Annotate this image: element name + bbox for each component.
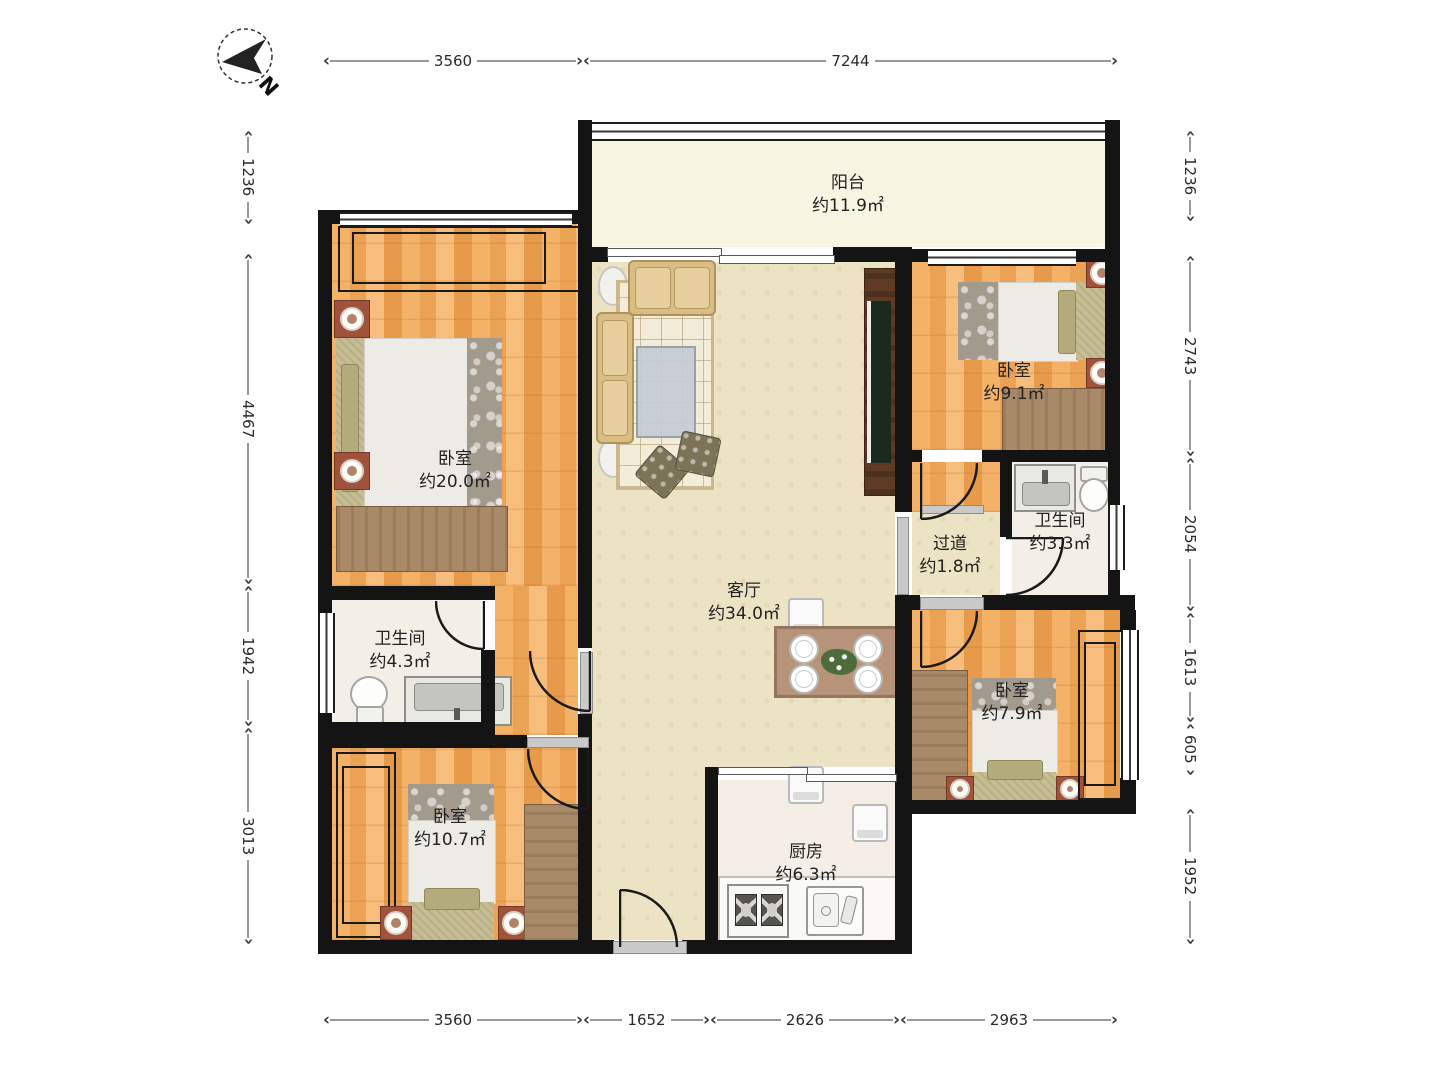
door-threshold — [527, 737, 589, 748]
dim-right-1: 1236 — [1181, 130, 1199, 222]
dining-chair — [852, 804, 888, 842]
window — [1121, 630, 1139, 780]
room-area: 约34.0㎡ — [674, 603, 814, 626]
wall — [907, 800, 1136, 814]
sliding-door — [806, 774, 897, 782]
door — [529, 650, 591, 712]
lamp-icon — [1060, 779, 1080, 799]
wall — [318, 940, 614, 954]
dim-label: 1652 — [622, 1011, 670, 1029]
wall — [1105, 249, 1120, 462]
dim-label: 1236 — [1181, 152, 1199, 200]
sink-vanity — [404, 676, 512, 726]
dim-bottom-3: 2626 — [710, 1011, 900, 1029]
wall — [895, 262, 912, 512]
wardrobe — [338, 226, 580, 292]
room-area: 约9.1㎡ — [944, 383, 1084, 406]
dim-label: 7244 — [826, 52, 874, 70]
double-bed — [958, 282, 1110, 360]
lamp-icon — [340, 459, 364, 483]
room-area: 约20.0㎡ — [385, 471, 525, 494]
wall — [332, 586, 495, 600]
coffee-table — [636, 346, 696, 438]
sink-vanity — [1014, 464, 1076, 512]
dim-top-2: 7244 — [583, 52, 1118, 70]
wall — [1076, 249, 1106, 262]
dim-left-3: 1942 — [239, 585, 257, 727]
dim-label: 2743 — [1181, 332, 1199, 380]
wall — [705, 767, 718, 954]
wall — [982, 595, 1135, 610]
dim-label: 1236 — [239, 153, 257, 201]
room-label-bathroom-left: 卫生间约4.3㎡ — [330, 628, 470, 674]
door — [527, 748, 589, 810]
room-name: 卧室 — [942, 680, 1082, 703]
bed-pillow — [424, 888, 480, 910]
wardrobe — [1078, 630, 1124, 800]
wall — [682, 940, 912, 954]
room-area: 约11.9㎡ — [778, 195, 918, 218]
dim-label: 4467 — [239, 395, 257, 443]
dim-right-6: 1952 — [1181, 808, 1199, 945]
wall — [1120, 778, 1136, 800]
dim-left-4: 3013 — [239, 727, 257, 945]
room-area: 约7.9㎡ — [942, 703, 1082, 726]
room-area: 约6.3㎡ — [736, 864, 876, 887]
dim-label: 2963 — [985, 1011, 1033, 1029]
door — [920, 462, 978, 520]
dining-table — [774, 626, 904, 698]
room-name: 卧室 — [385, 448, 525, 471]
dim-label: 605 — [1181, 730, 1199, 769]
sliding-door — [607, 248, 722, 257]
room-name: 客厅 — [674, 580, 814, 603]
wall — [578, 249, 592, 648]
wall — [895, 595, 920, 610]
dim-label: 2054 — [1181, 510, 1199, 558]
lamp-icon — [502, 911, 526, 935]
nightstand — [380, 906, 412, 940]
dim-label: 1942 — [239, 632, 257, 680]
nightstand — [334, 452, 370, 490]
dim-right-3: 2054 — [1181, 457, 1199, 612]
window — [592, 122, 1105, 141]
dim-bottom-4: 2963 — [900, 1011, 1118, 1029]
lamp-icon — [384, 911, 408, 935]
room-name: 卧室 — [944, 360, 1084, 383]
door — [619, 889, 679, 949]
wall — [578, 120, 592, 249]
dim-label: 3560 — [429, 1011, 477, 1029]
plate-icon — [853, 664, 883, 694]
wall — [318, 210, 332, 954]
stove — [727, 884, 789, 938]
nightstand — [334, 300, 370, 338]
plate-icon — [789, 634, 819, 664]
room-name: 卫生间 — [330, 628, 470, 651]
wall — [592, 247, 608, 262]
room-label-hallway: 过道约1.8㎡ — [880, 533, 1020, 579]
dim-left-1: 1236 — [239, 130, 257, 225]
dim-left-2: 4467 — [239, 253, 257, 585]
room-label-bedroom-bottom-right: 卧室约7.9㎡ — [942, 680, 1082, 726]
room-label-living: 客厅约34.0㎡ — [674, 580, 814, 626]
tv-cabinet — [864, 268, 896, 496]
north-compass-icon: N — [212, 22, 286, 96]
plate-icon — [789, 664, 819, 694]
room-name: 卫生间 — [990, 510, 1130, 533]
dim-bottom-2: 1652 — [583, 1011, 710, 1029]
bed-pillow — [987, 760, 1043, 780]
door — [920, 610, 978, 668]
dim-right-2: 2743 — [1181, 255, 1199, 457]
loveseat-sofa — [628, 260, 716, 316]
window — [928, 249, 1076, 266]
room-area: 约4.3㎡ — [330, 651, 470, 674]
floor-cushion — [674, 430, 721, 477]
plate-icon — [853, 634, 883, 664]
room-area: 约10.7㎡ — [380, 829, 520, 852]
wall — [1108, 462, 1120, 507]
window — [340, 212, 572, 227]
room-name: 厨房 — [736, 841, 876, 864]
wall — [982, 450, 1105, 462]
dim-label: 3013 — [239, 812, 257, 860]
wall — [1120, 610, 1136, 632]
room-area: 约1.8㎡ — [880, 556, 1020, 579]
dim-right-4: 1613 — [1181, 612, 1199, 723]
dim-label: 2626 — [781, 1011, 829, 1029]
dim-right-5: 605 — [1181, 723, 1199, 770]
toilet — [1078, 466, 1106, 508]
room-label-bedroom-top-right: 卧室约9.1㎡ — [944, 360, 1084, 406]
wall — [1108, 568, 1120, 595]
dim-label: 3560 — [429, 52, 477, 70]
room-name: 卧室 — [380, 806, 520, 829]
door-threshold — [920, 597, 984, 610]
room-name: 阳台 — [778, 172, 918, 195]
sofa — [596, 312, 634, 444]
tv-icon — [867, 301, 891, 463]
room-label-bedroom-bottom-left: 卧室约10.7㎡ — [380, 806, 520, 852]
dim-bottom-1: 3560 — [323, 1011, 583, 1029]
wall — [912, 249, 929, 262]
wall — [1105, 120, 1120, 249]
flower-centerpiece-icon — [821, 649, 857, 675]
wall — [318, 722, 495, 735]
dim-label: 1952 — [1181, 852, 1199, 900]
dim-label: 1613 — [1181, 643, 1199, 691]
room-label-kitchen: 厨房约6.3㎡ — [736, 841, 876, 887]
room-name: 过道 — [880, 533, 1020, 556]
sliding-door — [718, 767, 808, 775]
bed-blanket — [958, 282, 998, 360]
wall — [318, 735, 527, 748]
sliding-door — [719, 255, 835, 264]
room-label-bedroom-master: 卧室约20.0㎡ — [385, 448, 525, 494]
lamp-icon — [950, 779, 970, 799]
floor-plan: N 3560 7244 3560 1652 2626 2963 1236 446… — [0, 0, 1440, 1080]
dim-top-1: 3560 — [323, 52, 583, 70]
nightstand — [946, 776, 974, 802]
wall — [895, 595, 912, 954]
kitchen-sink — [806, 886, 864, 936]
dresser — [524, 804, 582, 942]
toilet — [348, 676, 388, 720]
wall — [912, 450, 922, 462]
dresser — [336, 506, 508, 572]
room-label-balcony: 阳台约11.9㎡ — [778, 172, 918, 218]
bed-pillow — [1058, 290, 1076, 354]
wall — [833, 247, 912, 262]
lamp-icon — [340, 307, 364, 331]
